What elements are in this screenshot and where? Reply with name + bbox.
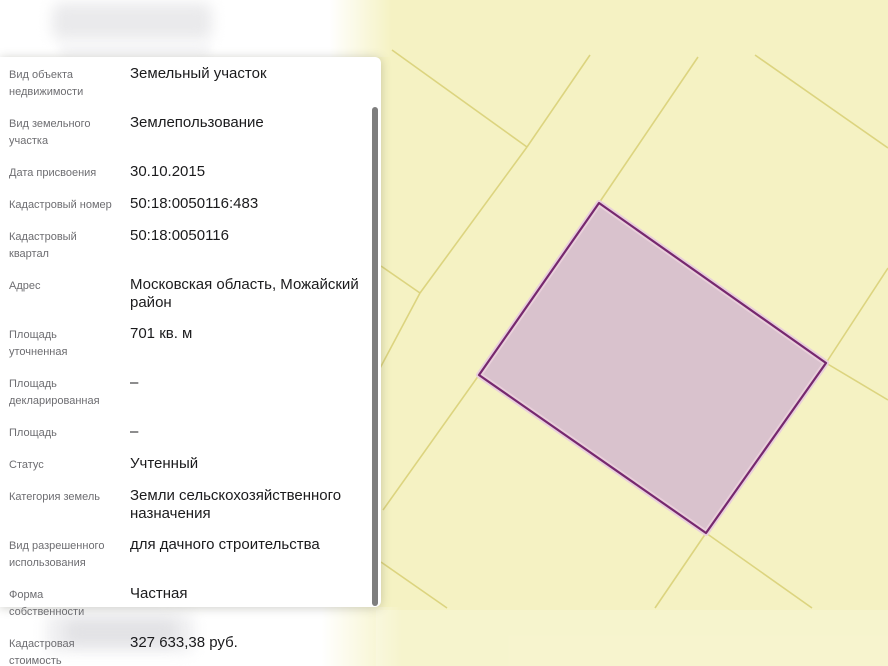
row-label: Вид разрешенного использования — [9, 536, 113, 572]
row-label: Кадастровый номер — [9, 195, 113, 214]
row-label: Вид земельного участка — [9, 114, 113, 150]
cadastral-boundary-line — [826, 363, 888, 400]
cadastral-boundary-line — [826, 268, 888, 363]
property-row: Форма собственности Частная — [9, 585, 363, 621]
row-value: Земли сельскохозяйственного назначения — [130, 487, 363, 523]
row-value: Московская область, Можайский район — [130, 276, 363, 312]
redacted-page-subtitle — [60, 44, 210, 55]
row-value: Частная — [130, 585, 363, 603]
row-value: Земельный участок — [130, 65, 363, 83]
cadastral-boundary-line — [381, 266, 420, 293]
property-row: Адрес Московская область, Можайский райо… — [9, 276, 363, 312]
row-label: Кадастровый квартал — [9, 227, 113, 263]
property-row: Площадь уточненная 701 кв. м — [9, 325, 363, 361]
cadastral-boundary-line — [527, 55, 590, 147]
row-value: Землепользование — [130, 114, 363, 132]
cadastral-boundary-line — [706, 533, 812, 608]
cadastral-boundary-line — [755, 55, 888, 148]
row-value: 30.10.2015 — [130, 163, 363, 181]
row-label: Площадь декларированная — [9, 374, 113, 410]
row-value: 701 кв. м — [130, 325, 363, 343]
row-value: – — [130, 423, 363, 441]
parcel-polygon-halo — [479, 203, 826, 533]
cadastral-boundary-line — [392, 50, 527, 147]
property-rows: Вид объекта недвижимости Земельный участ… — [0, 57, 381, 666]
row-value: для дачного строительства — [130, 536, 363, 554]
row-value: 50:18:0050116:483 — [130, 195, 363, 213]
row-label: Площадь — [9, 423, 113, 442]
property-row: Кадастровый номер 50:18:0050116:483 — [9, 195, 363, 214]
app-root: Вид объекта недвижимости Земельный участ… — [0, 0, 888, 666]
row-label: Адрес — [9, 276, 113, 295]
cadastral-boundary-line — [420, 147, 527, 293]
cadastral-boundary-line — [655, 533, 706, 608]
row-value: – — [130, 374, 363, 392]
property-panel: Вид объекта недвижимости Земельный участ… — [0, 57, 381, 607]
row-value: 327 633,38 руб. — [130, 634, 363, 652]
row-label: Площадь уточненная — [9, 325, 113, 361]
row-label: Форма собственности — [9, 585, 113, 621]
panel-scrollbar[interactable] — [372, 107, 378, 606]
property-row: Вид объекта недвижимости Земельный участ… — [9, 65, 363, 101]
row-label: Вид объекта недвижимости — [9, 65, 113, 101]
property-row: Площадь декларированная – — [9, 374, 363, 410]
row-label: Категория земель — [9, 487, 113, 506]
row-value: Учтенный — [130, 455, 363, 473]
cadastral-boundary-line — [381, 562, 447, 608]
row-label: Статус — [9, 455, 113, 474]
row-label: Кадастровая стоимость — [9, 634, 113, 666]
property-row: Статус Учтенный — [9, 455, 363, 474]
property-row: Дата присвоения 30.10.2015 — [9, 163, 363, 182]
property-row: Категория земель Земли сельскохозяйствен… — [9, 487, 363, 523]
redacted-page-title — [52, 3, 212, 40]
cadastral-boundary-line — [599, 57, 698, 203]
cadastral-boundary-line — [378, 293, 420, 372]
row-value: 50:18:0050116 — [130, 227, 363, 245]
property-row: Площадь – — [9, 423, 363, 442]
row-label: Дата присвоения — [9, 163, 113, 182]
cadastral-boundary-line — [383, 375, 479, 510]
property-row: Вид земельного участка Землепользование — [9, 114, 363, 150]
map-bottom-fade — [376, 610, 888, 666]
property-row: Кадастровая стоимость 327 633,38 руб. — [9, 634, 363, 666]
page-header-area — [0, 0, 392, 57]
property-row: Кадастровый квартал 50:18:0050116 — [9, 227, 363, 263]
property-row: Вид разрешенного использования для дачно… — [9, 536, 363, 572]
